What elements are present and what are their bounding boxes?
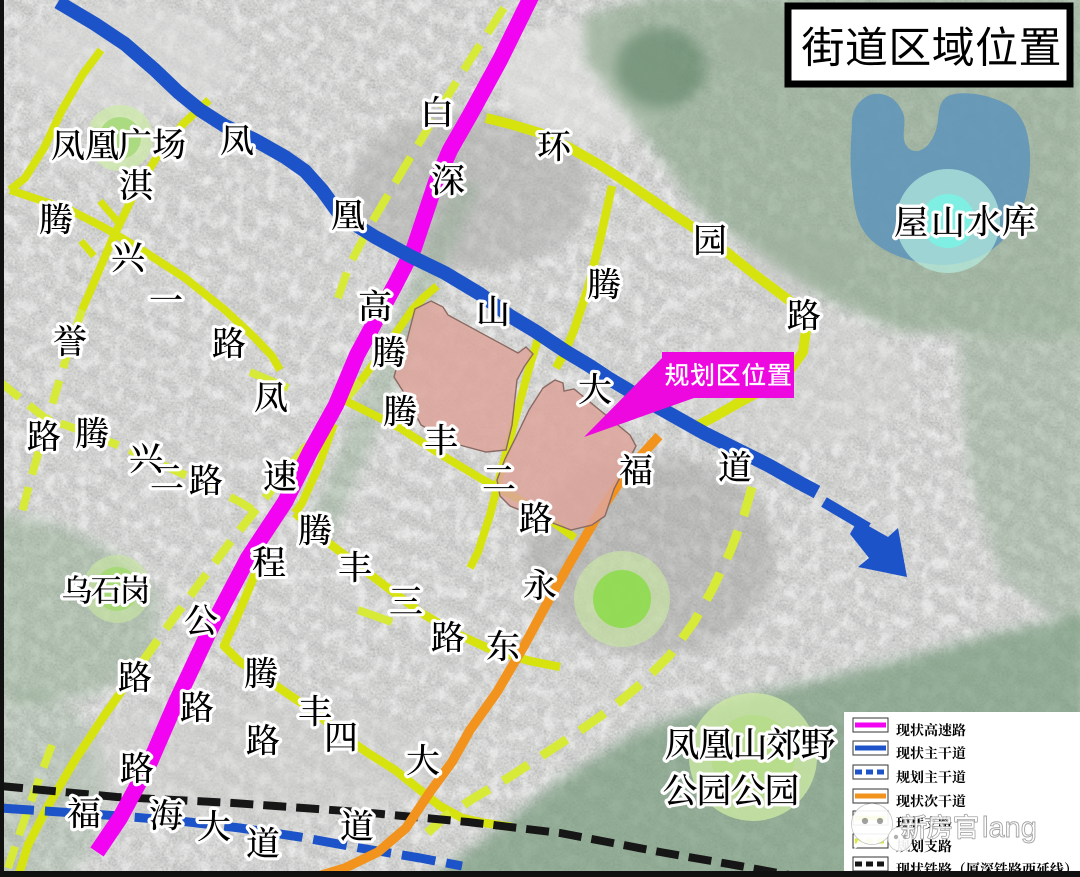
svg-text:lang: lang [982, 812, 1037, 844]
